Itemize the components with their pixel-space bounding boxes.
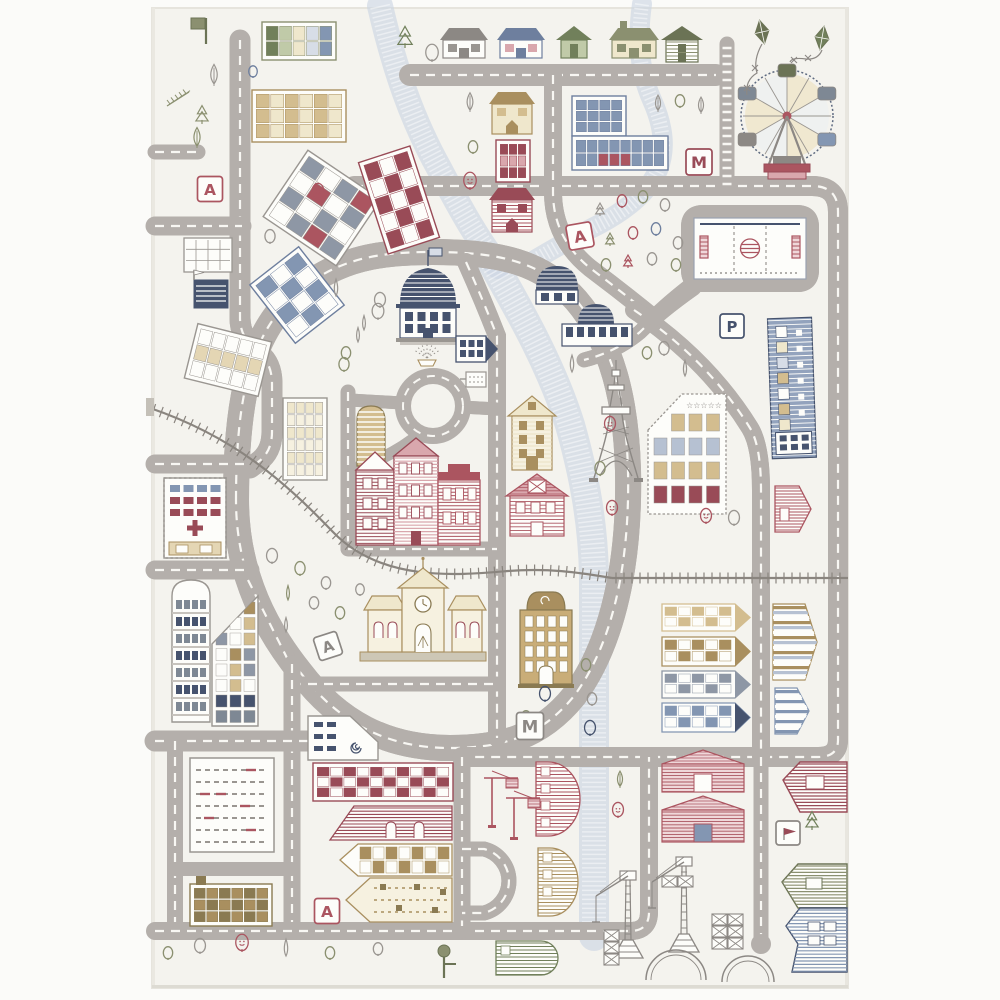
- building-arrow-2: [662, 637, 750, 666]
- sign-pennant-quay: [776, 821, 800, 845]
- building-dome-small: [536, 266, 578, 304]
- play-rug-city-map: ☆☆☆☆☆AAAAMMP: [0, 0, 1000, 1000]
- rowhouse-pink: [394, 438, 438, 545]
- house-olive-col: [489, 92, 535, 134]
- building-arrow-3: [662, 671, 750, 698]
- building-cream-block: [252, 90, 346, 142]
- rowhouse-maroon: [356, 452, 394, 545]
- sign-m-top: M: [686, 149, 712, 175]
- svg-text:A: A: [204, 181, 216, 199]
- garden-plots: [190, 758, 274, 852]
- containers-3: [604, 930, 619, 965]
- containers-1: [662, 876, 693, 887]
- svg-text:M: M: [522, 716, 539, 736]
- rug-tag: [146, 398, 154, 416]
- svg-text:M: M: [691, 153, 707, 172]
- containers-2: [712, 914, 743, 949]
- building-arrow-4: [662, 703, 750, 732]
- ship-blue: [786, 908, 848, 972]
- house-red-col: [489, 188, 535, 232]
- sign-a-harbor: A: [315, 899, 340, 924]
- building-checker-tan: [340, 844, 452, 876]
- building-blue-tower: [768, 317, 817, 458]
- house-row-1: [440, 28, 488, 58]
- rowhouse-red: [438, 464, 480, 545]
- building-maroon-rowblock: [496, 140, 530, 182]
- building-checker-red: [313, 763, 453, 801]
- svg-text:A: A: [321, 903, 333, 921]
- screenshot-root: ☆☆☆☆☆AAAAMMP: [0, 0, 1000, 1000]
- building-round-tower: [172, 580, 210, 722]
- svg-text:☆☆☆☆☆: ☆☆☆☆☆: [686, 401, 722, 410]
- building-blue-long: [572, 136, 668, 170]
- building-cream-tower: [283, 398, 327, 480]
- tram-line: [723, 44, 732, 188]
- sign-p-parking: P: [720, 314, 744, 338]
- building-cream-hall: [346, 878, 452, 922]
- building-tan-block: [190, 876, 272, 926]
- building-top-left: [262, 22, 336, 60]
- sign-m-center: M: [517, 713, 544, 740]
- roundabout-spoke-west: [350, 400, 402, 403]
- building-arrow-1: [662, 604, 750, 631]
- soccer-field: [694, 218, 806, 279]
- sign-a-topleft: A: [198, 177, 223, 202]
- svg-text:P: P: [727, 318, 738, 336]
- sign-a-park: A: [566, 222, 595, 251]
- cul-de-sac: [751, 934, 771, 954]
- house-row-2: [497, 28, 545, 58]
- building-hospital: [164, 478, 226, 558]
- building-blue-upper: [572, 96, 626, 136]
